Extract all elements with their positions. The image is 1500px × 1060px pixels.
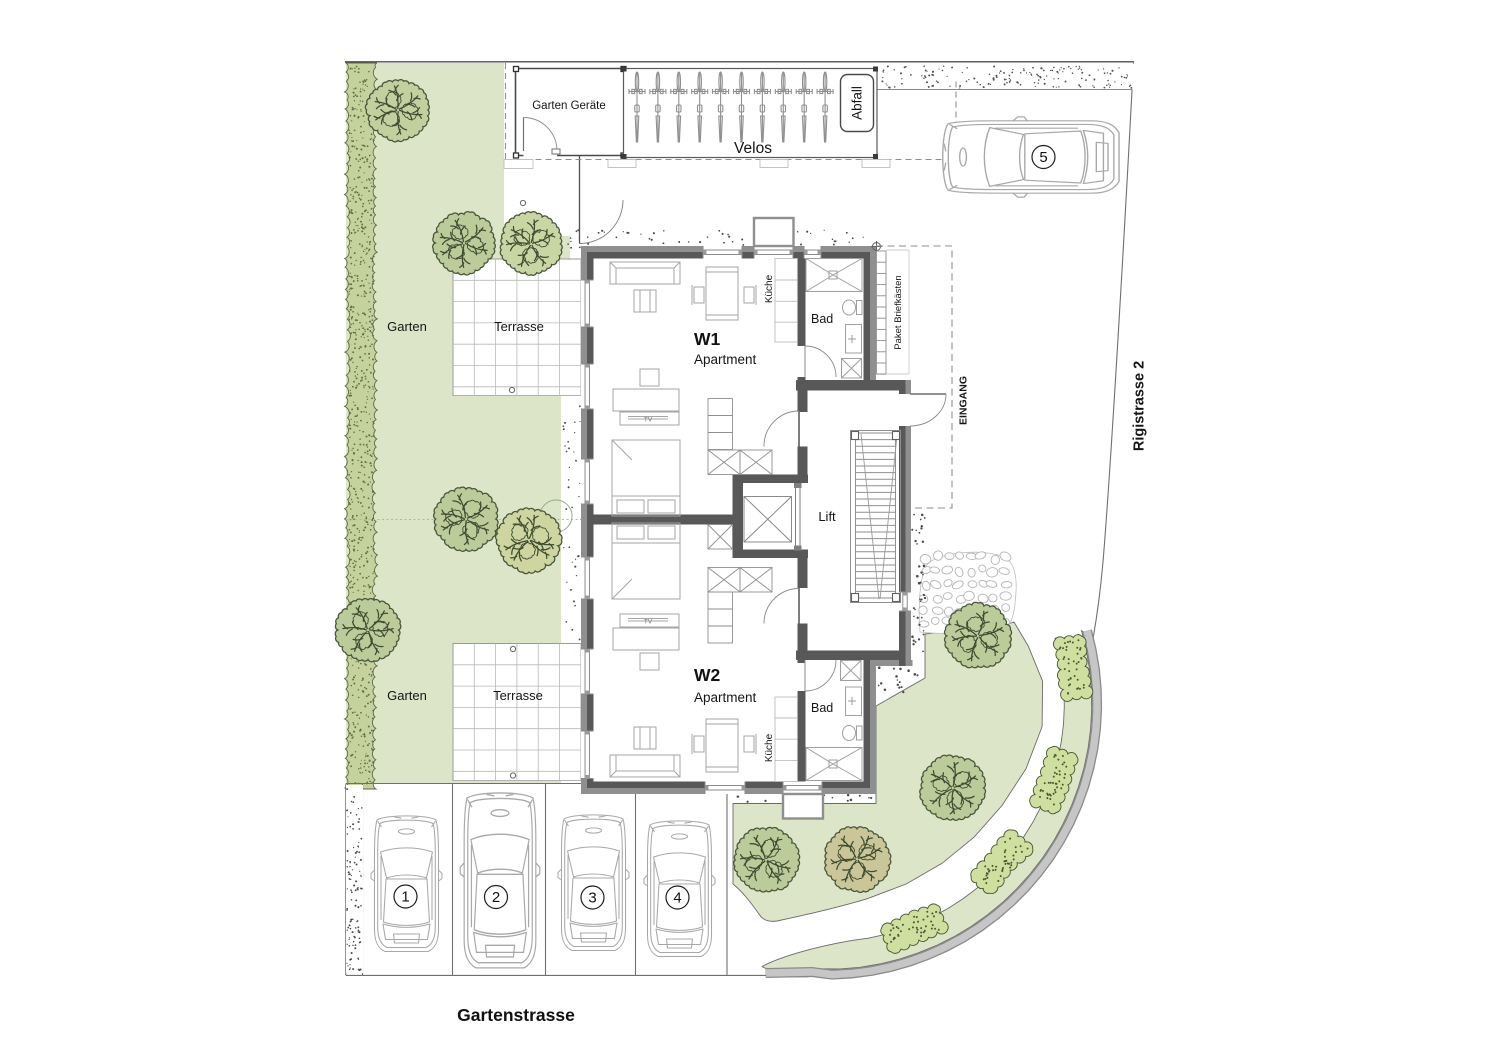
svg-text:Apartment: Apartment	[694, 352, 757, 367]
svg-text:Lift: Lift	[818, 509, 836, 524]
svg-text:Terrasse: Terrasse	[494, 319, 544, 334]
svg-text:Velos: Velos	[734, 140, 772, 157]
svg-text:Terrasse: Terrasse	[493, 688, 543, 703]
svg-text:1: 1	[401, 889, 409, 906]
svg-text:Rigistrasse 2: Rigistrasse 2	[1132, 361, 1148, 451]
svg-text:4: 4	[673, 890, 681, 907]
svg-text:Gartenstrasse: Gartenstrasse	[457, 1005, 575, 1025]
svg-text:Küche: Küche	[764, 733, 775, 762]
svg-text:5: 5	[1039, 149, 1047, 166]
svg-text:Garten Geräte: Garten Geräte	[532, 100, 606, 112]
svg-text:Garten: Garten	[387, 688, 427, 703]
svg-text:TV: TV	[644, 619, 653, 626]
svg-text:Garten: Garten	[387, 319, 427, 334]
svg-text:2: 2	[492, 889, 500, 906]
svg-text:EINGANG: EINGANG	[958, 376, 970, 425]
svg-text:Apartment: Apartment	[694, 690, 757, 705]
svg-text:Küche: Küche	[764, 274, 775, 303]
svg-text:Abfall: Abfall	[850, 86, 865, 120]
svg-text:Bad: Bad	[811, 312, 833, 326]
svg-text:3: 3	[588, 890, 596, 907]
svg-text:Bad: Bad	[811, 701, 833, 715]
svg-text:TV: TV	[644, 417, 653, 424]
svg-text:W2: W2	[694, 665, 721, 685]
svg-text:Paket Briefkästen: Paket Briefkästen	[893, 275, 904, 349]
svg-text:W1: W1	[694, 329, 721, 349]
